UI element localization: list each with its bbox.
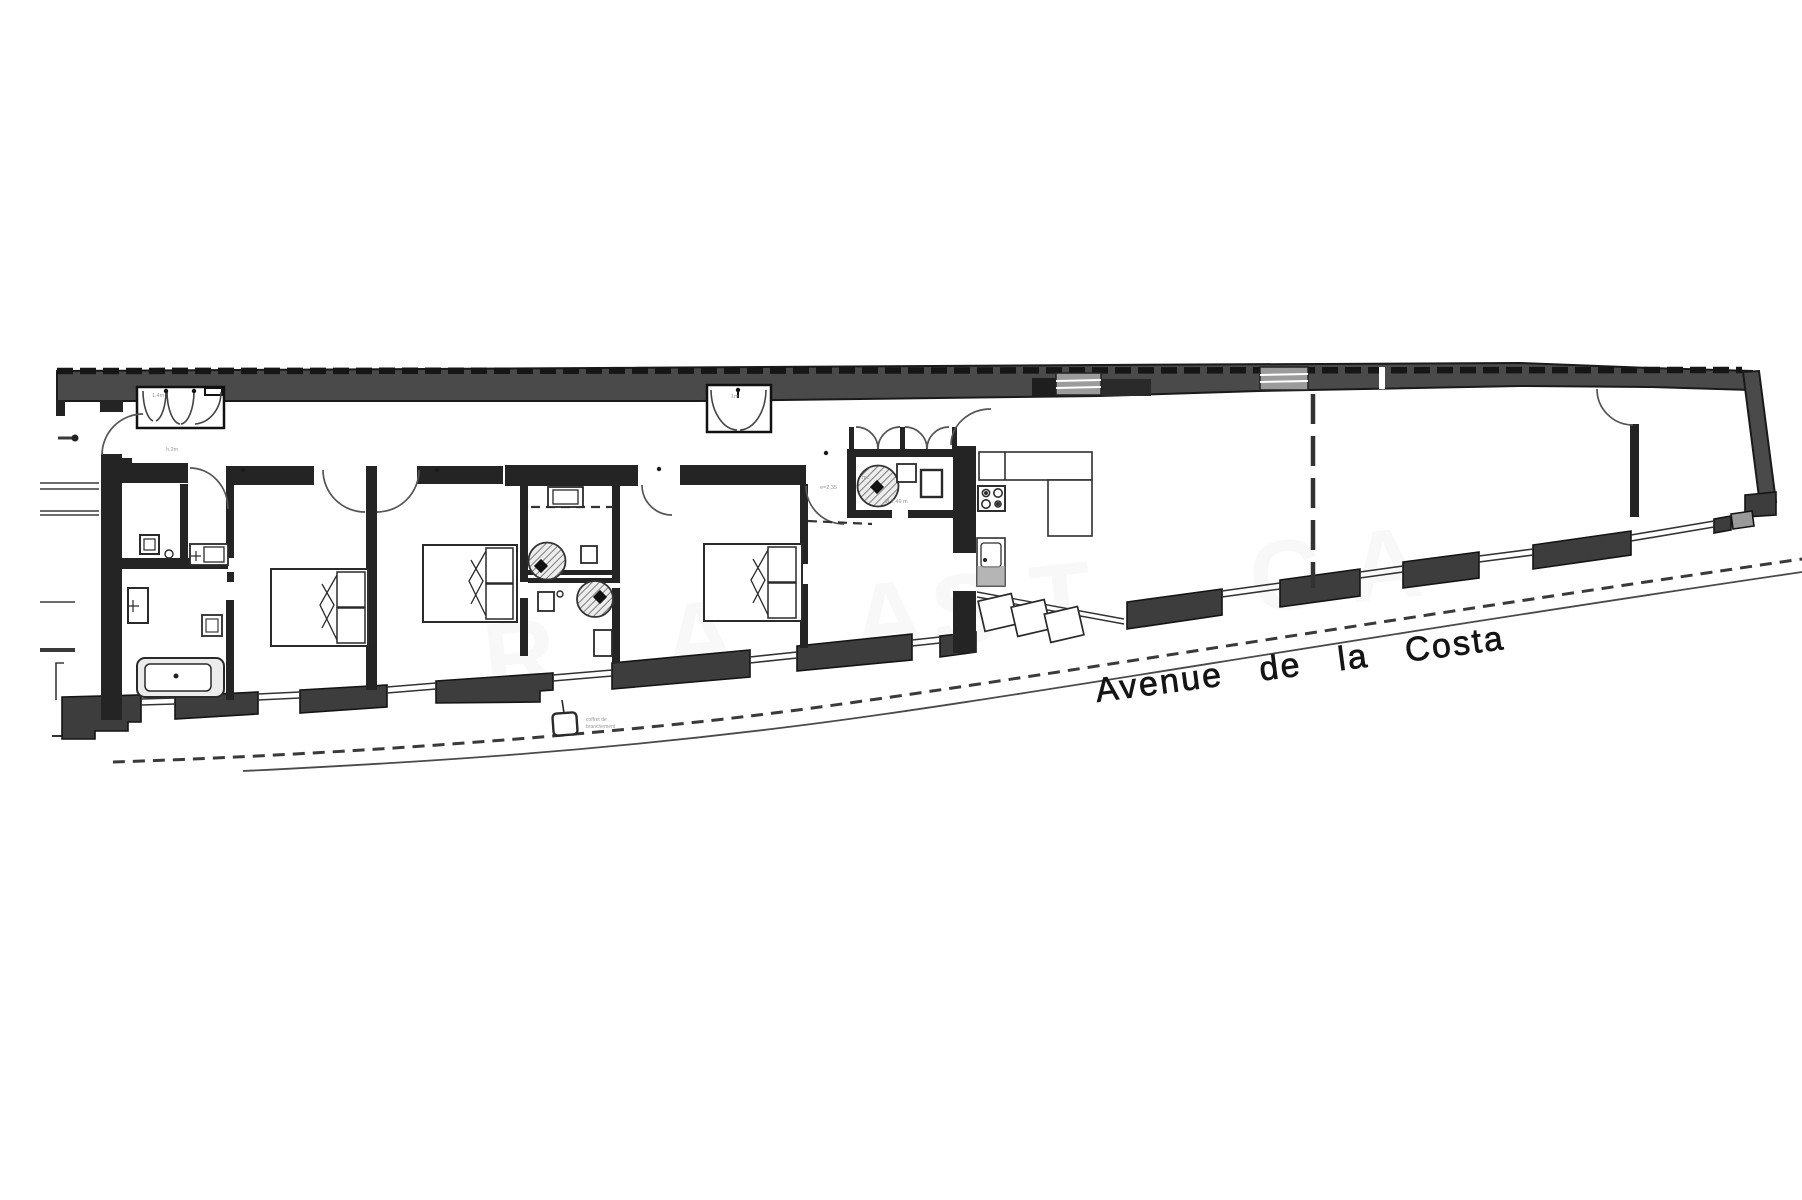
svg-text:h.2m: h.2m	[166, 447, 179, 453]
svg-text:coffret de: coffret de	[586, 717, 607, 723]
svg-text:1m: 1m	[731, 394, 739, 400]
svg-text:Ø 2,49 m: Ø 2,49 m	[885, 499, 908, 505]
svg-text:mc: mc	[862, 475, 870, 481]
svg-text:1.4m: 1.4m	[152, 393, 165, 399]
svg-text:branchement: branchement	[586, 724, 616, 730]
svg-text:e=2,35: e=2,35	[820, 485, 837, 491]
